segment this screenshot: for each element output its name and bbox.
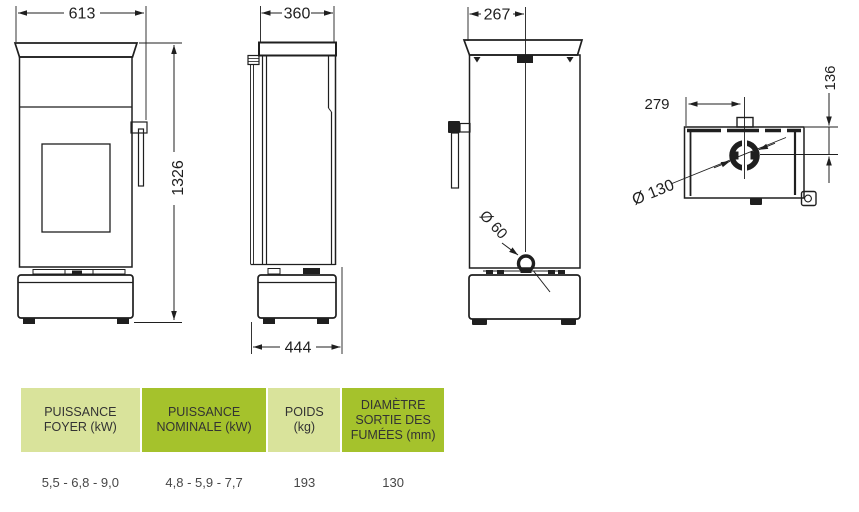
stove-spec-sheet: { "colors": { "line": "#1f1f1f", "table_… <box>0 0 859 512</box>
side-view-stove <box>248 43 336 325</box>
front-width-dimension: 613 <box>16 6 146 121</box>
spec-value-poids: 193 <box>268 475 340 490</box>
spec-value-puissance-nominale: 4,8 - 5,9 - 7,7 <box>142 475 267 490</box>
rear-air-inlet-label: Ø 60 <box>476 207 511 242</box>
spec-column-puissance-nominale: PUISSANCE NOMINALE (kW) 4,8 - 5,9 - 7,7 <box>142 388 267 490</box>
top-view: 279 136 Ø 130 <box>630 65 839 208</box>
front-height-label: 1326 <box>170 160 187 196</box>
spec-column-diametre-fumees: DIAMÈTRE SORTIE DES FUMÉES (mm) 130 <box>342 388 444 490</box>
spec-value-puissance-foyer: 5,5 - 6,8 - 9,0 <box>21 475 140 490</box>
side-base-depth-label: 444 <box>285 340 312 357</box>
front-width-label: 613 <box>69 6 96 23</box>
top-view-stove <box>685 118 817 206</box>
rear-view: 267 Ø 60 <box>448 7 582 326</box>
technical-drawing: 613 1326 <box>0 0 859 370</box>
side-top-width-label: 360 <box>284 6 311 23</box>
spec-header-puissance-nominale: PUISSANCE NOMINALE (kW) <box>142 388 267 452</box>
rear-air-inlet-dimension: Ø 60 <box>476 207 550 292</box>
front-view-stove <box>15 43 147 324</box>
spec-column-puissance-foyer: PUISSANCE FOYER (kW) 5,5 - 6,8 - 9,0 <box>21 388 140 490</box>
top-flue-depth-label: 136 <box>822 65 839 90</box>
top-flue-diameter-label: Ø 130 <box>630 177 677 209</box>
top-flue-offset-dimension: 279 <box>644 96 744 126</box>
spec-header-puissance-foyer: PUISSANCE FOYER (kW) <box>21 388 140 452</box>
top-flue-depth-dimension: 136 <box>760 65 839 183</box>
rear-view-stove <box>448 40 582 325</box>
side-view: 360 <box>248 6 342 357</box>
front-height-dimension: 1326 <box>134 43 187 323</box>
rear-offset-label: 267 <box>484 7 511 24</box>
spec-column-poids: POIDS (kg) 193 <box>268 388 340 490</box>
spec-header-diametre-fumees: DIAMÈTRE SORTIE DES FUMÉES (mm) <box>342 388 444 452</box>
side-base-depth-dimension: 444 <box>252 267 343 357</box>
spec-value-diametre-fumees: 130 <box>342 475 444 490</box>
side-top-width-dimension: 360 <box>261 6 335 43</box>
spec-table: PUISSANCE FOYER (kW) 5,5 - 6,8 - 9,0 PUI… <box>21 388 444 490</box>
front-view: 613 1326 <box>15 6 187 325</box>
top-flue-offset-label: 279 <box>644 96 669 113</box>
spec-header-poids: POIDS (kg) <box>268 388 340 452</box>
